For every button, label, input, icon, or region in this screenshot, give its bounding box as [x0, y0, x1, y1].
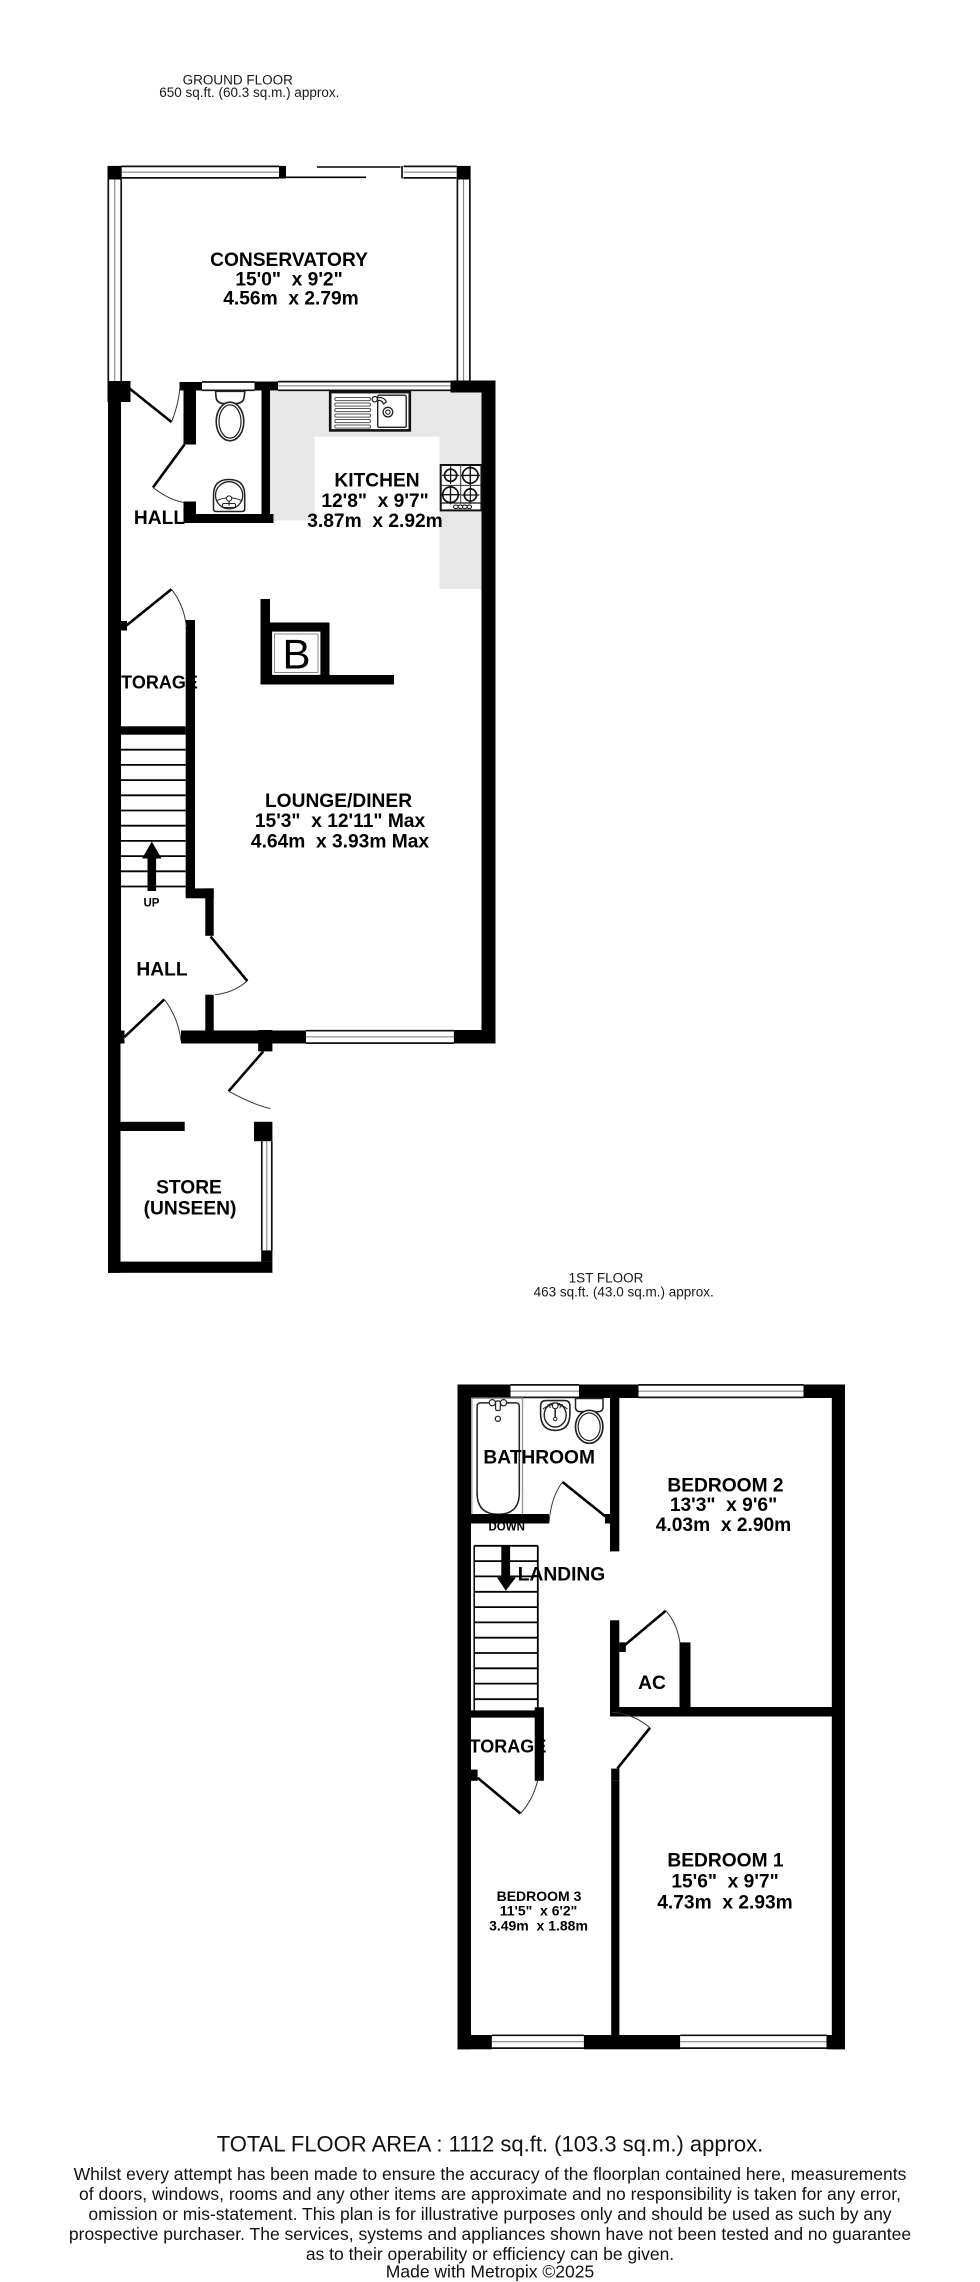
svg-text:4.56m x 2.79m: 4.56m x 2.79m: [223, 289, 358, 310]
svg-text:HALL: HALL: [136, 960, 187, 981]
svg-text:15'0" x 9'2": 15'0" x 9'2": [235, 270, 342, 291]
svg-text:Whilst every attempt has been: Whilst every attempt has been made to en…: [74, 2164, 907, 2184]
svg-text:11'5" x 6'2": 11'5" x 6'2": [500, 1902, 578, 1918]
svg-text:omission or mis-statement. Thi: omission or mis-statement. This plan is …: [88, 2204, 891, 2224]
svg-text:BEDROOM 2: BEDROOM 2: [667, 1476, 783, 1497]
svg-text:Made with Metropix ©2025: Made with Metropix ©2025: [386, 2262, 594, 2282]
svg-text:463 sq.ft. (43.0 sq.m.) approx: 463 sq.ft. (43.0 sq.m.) approx.: [534, 1284, 714, 1299]
svg-text:DOWN: DOWN: [488, 1522, 524, 1534]
svg-text:KITCHEN: KITCHEN: [334, 471, 419, 492]
svg-text:4.64m x 3.93m Max: 4.64m x 3.93m Max: [251, 832, 429, 853]
svg-text:3.87m x 2.92m: 3.87m x 2.92m: [307, 511, 442, 532]
svg-text:15'6" x 9'7": 15'6" x 9'7": [671, 1872, 778, 1893]
svg-text:BEDROOM 1: BEDROOM 1: [667, 1851, 784, 1872]
svg-text:4.73m x 2.93m: 4.73m x 2.93m: [657, 1893, 792, 1914]
svg-text:UP: UP: [144, 898, 160, 910]
svg-text:BATHROOM: BATHROOM: [483, 1448, 595, 1469]
svg-text:TOTAL FLOOR AREA : 1112 sq.ft.: TOTAL FLOOR AREA : 1112 sq.ft. (103.3 sq…: [217, 2132, 764, 2157]
svg-text:12'8" x 9'7": 12'8" x 9'7": [321, 491, 428, 512]
svg-text:CONSERVATORY: CONSERVATORY: [210, 250, 368, 271]
svg-text:B: B: [282, 631, 310, 678]
svg-text:HALL: HALL: [134, 508, 185, 529]
svg-text:prospective purchaser. The ser: prospective purchaser. The services, sys…: [69, 2224, 911, 2244]
svg-text:LANDING: LANDING: [518, 1565, 605, 1586]
svg-text:650 sq.ft. (60.3 sq.m.) approx: 650 sq.ft. (60.3 sq.m.) approx.: [159, 85, 339, 100]
svg-text:of doors, windows, rooms and a: of doors, windows, rooms and any other i…: [79, 2184, 901, 2204]
svg-text:(UNSEEN): (UNSEEN): [144, 1199, 237, 1220]
svg-text:AC: AC: [638, 1673, 666, 1694]
svg-text:STORE: STORE: [156, 1178, 222, 1199]
svg-text:STORAGE: STORAGE: [109, 672, 198, 692]
svg-text:15'3" x 12'11" Max: 15'3" x 12'11" Max: [255, 811, 426, 832]
svg-text:4.03m x 2.90m: 4.03m x 2.90m: [656, 1515, 791, 1536]
svg-text:13'3" x 9'6": 13'3" x 9'6": [670, 1495, 777, 1516]
svg-text:LOUNGE/DINER: LOUNGE/DINER: [265, 791, 412, 812]
svg-text:3.49m x 1.88m: 3.49m x 1.88m: [489, 1917, 588, 1933]
